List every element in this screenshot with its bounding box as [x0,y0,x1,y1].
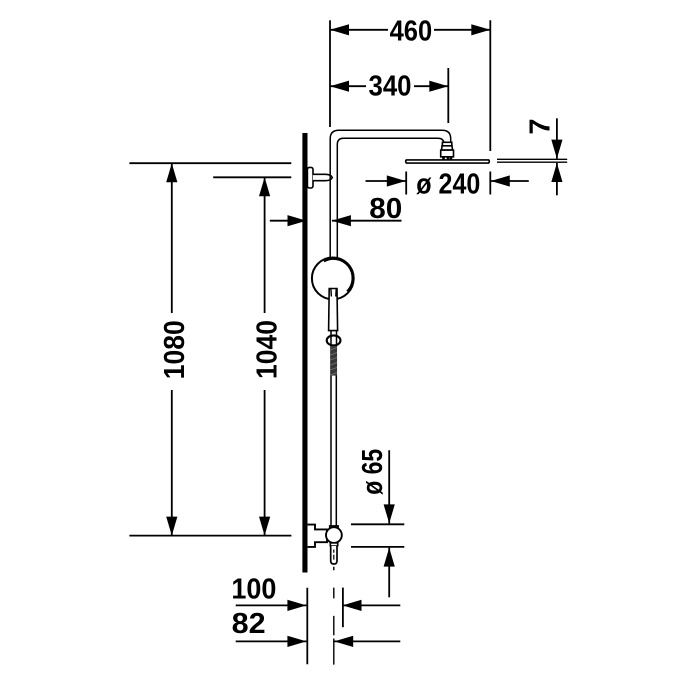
svg-text:460: 460 [390,16,433,48]
svg-text:ø 240: ø 240 [416,168,480,200]
svg-text:340: 340 [369,71,412,103]
svg-text:ø 65: ø 65 [357,449,389,495]
svg-text:1040: 1040 [252,320,284,379]
svg-text:100: 100 [231,574,276,606]
svg-text:80: 80 [369,193,402,225]
svg-text:1080: 1080 [159,320,191,379]
svg-text:82: 82 [232,608,266,640]
svg-text:7: 7 [524,118,556,134]
